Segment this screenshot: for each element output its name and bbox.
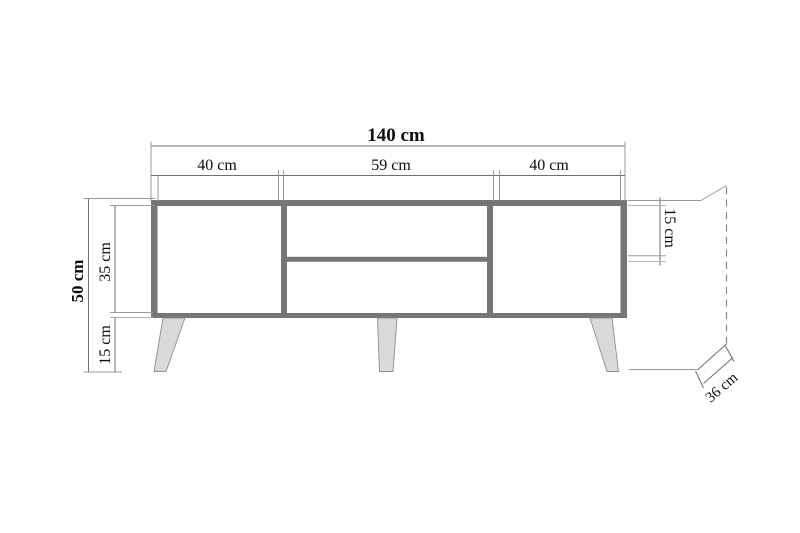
section-widths-dimension: 40 cm 59 cm 40 cm — [151, 157, 625, 201]
body-height-label: 35 cm — [97, 242, 114, 282]
left-section-width-label: 40 cm — [197, 157, 237, 174]
top-opening-height-dimension: 15 cm — [628, 198, 702, 266]
right-section-width-label: 40 cm — [529, 157, 569, 174]
depth-dimension: 36 cm — [629, 186, 741, 407]
right-door-opening — [493, 206, 621, 313]
top-opening-height-label: 15 cm — [661, 208, 678, 248]
tv-stand-body — [151, 200, 627, 318]
leg-height-label: 15 cm — [97, 325, 114, 365]
legs — [154, 318, 619, 372]
center-top-opening — [287, 206, 487, 257]
total-width-label: 140 cm — [367, 125, 425, 146]
furniture-dimension-diagram: 140 cm 40 cm 59 cm 40 cm 50 cm 35 cm 15 … — [0, 0, 800, 533]
left-door-opening — [158, 206, 282, 313]
left-leg — [154, 318, 185, 372]
leg-height-dimension: 15 cm — [97, 318, 115, 373]
center-bottom-opening — [287, 262, 487, 313]
center-section-width-label: 59 cm — [371, 157, 411, 174]
body-height-dimension: 35 cm — [97, 206, 155, 318]
dimension-diagram-canvas: 140 cm 40 cm 59 cm 40 cm 50 cm 35 cm 15 … — [0, 0, 800, 533]
depth-label: 36 cm — [703, 370, 742, 407]
total-height-label: 50 cm — [68, 260, 87, 303]
middle-leg — [378, 318, 398, 372]
right-leg — [590, 318, 619, 372]
